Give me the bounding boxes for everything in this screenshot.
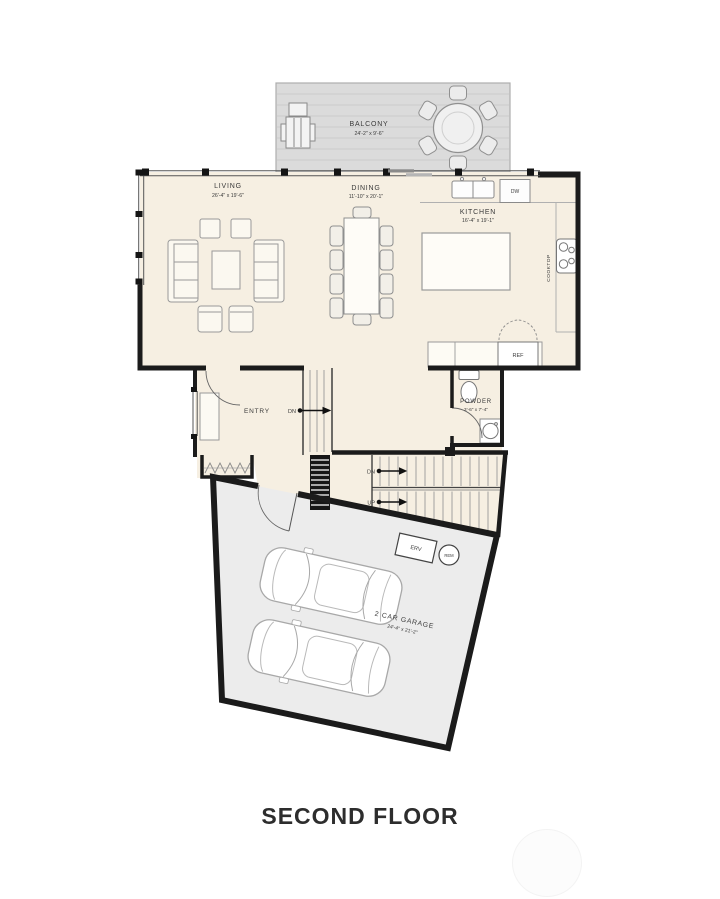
balcony: BALCONY 24'-2" x 9'-6" (276, 83, 510, 172)
sofa (168, 240, 198, 302)
powder-label: POWDER (460, 399, 492, 405)
accent-chair (200, 219, 220, 238)
toilet (459, 371, 479, 403)
living-dims: 26'-4" x 19'-6" (212, 193, 244, 199)
powder-dims: 3'-6" x 7'-4" (464, 407, 488, 413)
dn-label: DN (367, 470, 375, 476)
accent-chair (231, 219, 251, 238)
coffee-table (212, 251, 240, 289)
cooktop-label: COOKTOP (546, 254, 552, 281)
armchair (229, 306, 253, 332)
dining-table (344, 218, 379, 314)
floor-plan-drawing: BALCONY 24'-2" x 9'-6" ERV REM 2 CAR GAR… (0, 0, 720, 899)
watermark-circle (512, 829, 582, 897)
living-label: LIVING (214, 183, 242, 190)
floor-title: SECOND FLOOR (0, 803, 720, 830)
kitchen-label: KITCHEN (460, 209, 496, 216)
up-label: UP (367, 501, 375, 507)
balcony-dims: 24'-2" x 9'-6" (354, 131, 383, 137)
sofa (254, 240, 284, 302)
refrigerator-label: REF (513, 353, 525, 359)
dining-label: DINING (351, 185, 380, 192)
entry-bench (200, 393, 219, 440)
dn-label: DN (288, 409, 296, 415)
balcony-label: BALCONY (349, 121, 388, 128)
dining-dims: 11'-10" x 20'-1" (349, 194, 384, 200)
kitchen-dims: 16'-4" x 19'-1" (462, 218, 494, 224)
cooktop (557, 239, 578, 273)
armchair (198, 306, 222, 332)
floor-plan-page: BALCONY 24'-2" x 9'-6" ERV REM 2 CAR GAR… (0, 0, 720, 899)
rem-label: REM (444, 553, 454, 558)
dishwasher: DW (500, 180, 530, 203)
dishwasher-label: DW (511, 189, 520, 195)
powder-sink (480, 419, 501, 443)
rem-unit: REM (439, 545, 459, 565)
entry-label: ENTRY (244, 408, 270, 415)
kitchen-island (422, 233, 510, 290)
